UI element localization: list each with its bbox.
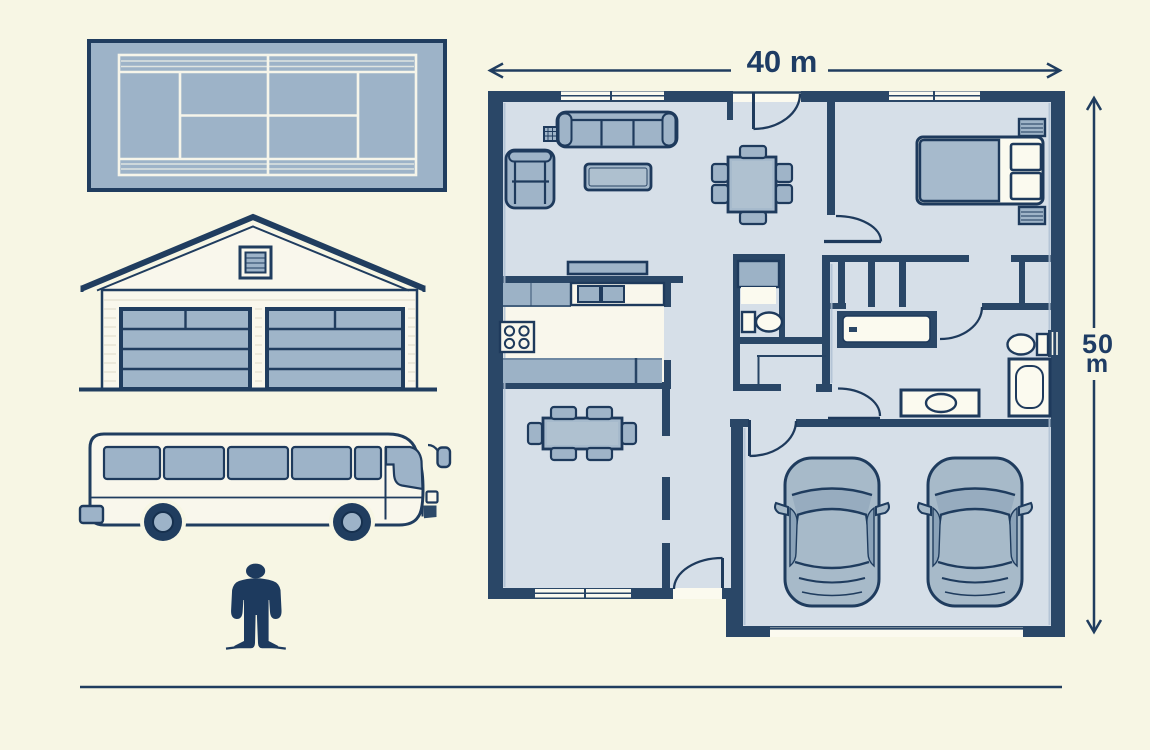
svg-text:m: m xyxy=(1086,350,1108,378)
svg-text:40 m: 40 m xyxy=(747,44,818,79)
